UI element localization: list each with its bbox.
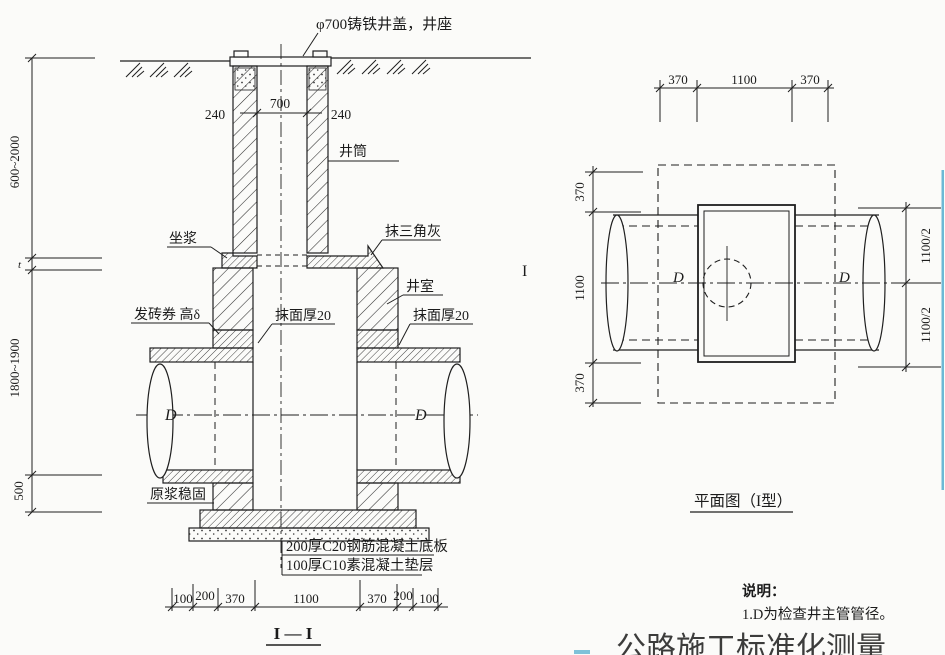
left-dim-line [25, 54, 102, 516]
dim-b5: 370 [367, 591, 387, 606]
dim-v3: 500 [11, 481, 26, 501]
base-slab [200, 510, 416, 528]
pipe-d-left: D [164, 407, 177, 424]
dim-b3: 370 [225, 591, 245, 606]
section-title: I — I [274, 624, 313, 643]
dim-b7: 100 [419, 591, 439, 606]
cushion-label: 100厚C10素混凝土垫层 [286, 557, 433, 574]
drawing-canvas: φ700铸铁井盖，井座 240 700 240 井筒 坐浆 抹三角灰 井室 发砖… [0, 0, 945, 655]
plan-dim-top-2: 1100 [731, 72, 757, 87]
grout-label: 原浆稳固 [150, 487, 206, 503]
plan-chamber [698, 205, 795, 362]
pipe-end-right [444, 364, 470, 478]
chamber-walls [213, 268, 398, 348]
hidden-wall-lines [215, 362, 396, 470]
plan-d-right: D [838, 270, 850, 286]
plan-dim-left-3: 370 [572, 373, 587, 393]
watermark-text: 公路施工标准化测量 [616, 632, 886, 655]
plan-dim-left-2: 1100 [572, 275, 587, 301]
dim-700: 700 [270, 96, 291, 111]
cover-label: φ700铸铁井盖，井座 [316, 16, 452, 33]
dim-b4: 1100 [293, 591, 319, 606]
arch-label: 发砖券 高δ [134, 306, 200, 323]
section-cut-marker: I [522, 263, 527, 280]
chamber-walls-lower [213, 483, 398, 510]
notes-heading: 说明： [742, 582, 786, 600]
plan-view [585, 80, 941, 512]
plan-dim-right-2: 1100/2 [918, 307, 933, 343]
fillet-label: 抹三角灰 [385, 224, 441, 240]
plan-dim-left-1: 370 [572, 182, 587, 202]
scan-artifact-bottom [574, 650, 590, 654]
dim-b1: 100 [173, 591, 193, 606]
mortar-label: 坐浆 [169, 231, 197, 247]
scan-artifact-right [942, 170, 945, 490]
label-leaders [131, 161, 473, 503]
dim-v1: 600~2000 [7, 136, 22, 189]
scanned-drawing-page: φ700铸铁井盖，井座 240 700 240 井筒 坐浆 抹三角灰 井室 发砖… [0, 0, 945, 655]
dim-v2: 1800~1900 [7, 338, 22, 397]
plaster-left-label: 抹面厚20 [275, 308, 331, 324]
dim-240-left: 240 [205, 107, 226, 122]
pipe-d-right: D [414, 407, 427, 424]
section-view [25, 33, 531, 645]
shaft-label: 井筒 [339, 143, 367, 160]
pipe-walls [150, 348, 460, 483]
plan-dim-right-1: 1100/2 [918, 228, 933, 264]
chamber-label: 井室 [406, 278, 434, 295]
plan-d-left: D [672, 270, 684, 286]
dim-240-right: 240 [331, 107, 352, 122]
slab-label: 200厚C20钢筋混凝土底板 [286, 537, 448, 555]
plan-dim-top-3: 370 [800, 72, 820, 87]
dim-vt: t [18, 259, 22, 271]
dim-b6: 200 [393, 588, 413, 603]
shaft-walls [233, 66, 328, 253]
note-item-1: 1.D为检查井主管管径。 [742, 606, 894, 623]
plan-title: 平面图（I型） [694, 492, 792, 510]
plaster-right-label: 抹面厚20 [413, 308, 469, 324]
dim-b2: 200 [195, 588, 215, 603]
manhole-cover [230, 33, 331, 66]
plan-dim-top-1: 370 [668, 72, 688, 87]
